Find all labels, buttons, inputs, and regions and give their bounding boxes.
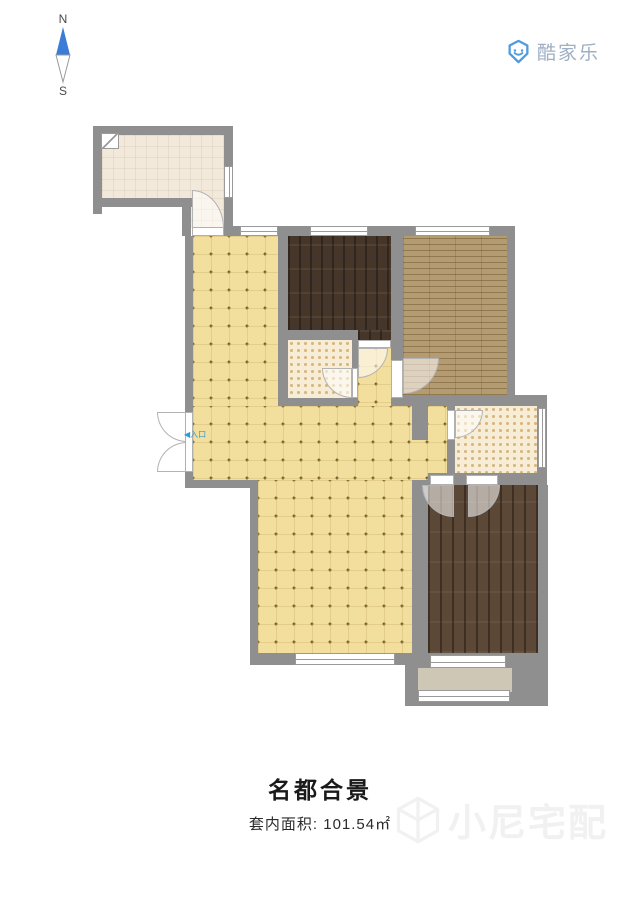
kitchen-door-panel xyxy=(192,227,224,236)
wall-kitchen-right-upper xyxy=(224,126,233,166)
wall-hall-lower-left xyxy=(250,488,258,658)
bedroom-top-door-panel xyxy=(358,340,391,348)
bedroom-top-window xyxy=(310,226,368,236)
kitchen-window xyxy=(224,166,233,198)
bathroom2-window xyxy=(538,408,546,468)
floor-plan: ◀入口 xyxy=(0,0,640,905)
bedroom-bottom-door1-panel xyxy=(430,475,454,485)
brand-logo: 酷家乐 xyxy=(506,38,600,65)
kitchen-sink-icon xyxy=(101,133,119,149)
wall-center-vertical xyxy=(278,236,288,406)
wall-bedroom1-bathroom1 xyxy=(283,330,358,340)
wall-bedroom2-bottom xyxy=(391,395,547,406)
wall-hall-jog xyxy=(185,480,258,488)
hall-bottom-window xyxy=(295,653,395,665)
wall-top-c xyxy=(368,226,415,236)
balcony-window xyxy=(418,690,510,702)
compass-needle-icon xyxy=(51,26,75,84)
bedroom-bottom-window xyxy=(430,655,506,668)
bedroom-right-window xyxy=(415,226,490,236)
wall-hall-bedroom-divider xyxy=(412,480,428,658)
wall-hall-bottom-a xyxy=(250,653,295,665)
wall-kitchen-ext-left xyxy=(182,198,191,236)
wall-divider-stub xyxy=(412,406,428,440)
balcony-floor xyxy=(418,668,512,692)
bathroom1-door-panel xyxy=(352,368,358,398)
compass-north-label: N xyxy=(44,12,82,26)
kitchen-floor xyxy=(102,135,224,198)
wall-kitchen-bottom xyxy=(93,198,192,207)
wall-top-a xyxy=(224,226,240,236)
hall-top-window xyxy=(240,226,278,236)
wall-hall-left xyxy=(185,236,193,412)
entrance-door-arc-lower xyxy=(157,442,187,472)
wall-bedroom2-right xyxy=(507,226,515,398)
compass-south-label: S xyxy=(44,84,82,98)
wall-top-b xyxy=(278,226,310,236)
hall-floor-upper xyxy=(193,236,278,406)
entrance-opening xyxy=(185,412,193,472)
bedroom-right-door-panel xyxy=(391,360,403,398)
plan-title: 名都合景 xyxy=(0,771,640,805)
floorplan-page: { "compass": { "north": "N", "south": "S… xyxy=(0,0,640,905)
entrance-door-arc-upper xyxy=(157,412,187,442)
wall-bathroom1-bottom xyxy=(278,398,358,406)
compass: N S xyxy=(44,12,82,98)
bedroom-bottom-door2-panel xyxy=(466,475,498,485)
kujiale-smiley-shield-icon xyxy=(506,39,531,64)
plan-area-label: 套内面积: 101.54㎡ xyxy=(0,813,640,834)
hall-floor-mid xyxy=(193,406,447,480)
entrance-label: ◀入口 xyxy=(184,429,206,440)
hall-floor-lower xyxy=(258,480,412,653)
bathroom2-door-panel xyxy=(447,410,455,440)
wall-balcony-right xyxy=(512,665,540,692)
brand-name: 酷家乐 xyxy=(537,38,600,65)
bedroom-top-floor xyxy=(288,236,391,330)
